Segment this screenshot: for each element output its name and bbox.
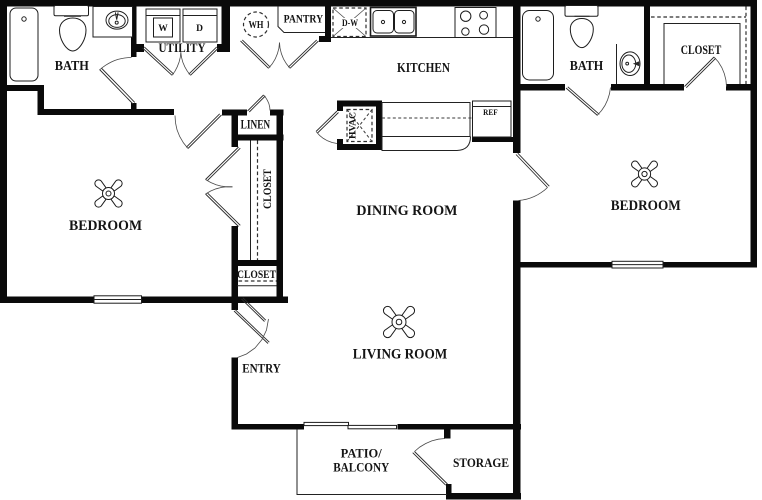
- svg-text:BEDROOM: BEDROOM: [611, 198, 681, 214]
- svg-text:D: D: [196, 24, 203, 34]
- svg-text:LIVING ROOM: LIVING ROOM: [353, 346, 448, 362]
- svg-text:STORAGE: STORAGE: [453, 456, 509, 470]
- svg-text:PANTRY: PANTRY: [284, 14, 324, 26]
- svg-text:W: W: [158, 24, 168, 34]
- svg-text:DINING ROOM: DINING ROOM: [356, 203, 457, 219]
- svg-text:CLOSET: CLOSET: [237, 268, 276, 281]
- svg-text:WH: WH: [249, 20, 264, 31]
- svg-text:D-W: D-W: [342, 19, 359, 29]
- svg-text:CLOSET: CLOSET: [681, 43, 722, 57]
- svg-text:PATIO/: PATIO/: [341, 447, 383, 461]
- svg-text:KITCHEN: KITCHEN: [397, 60, 450, 75]
- svg-text:BATH: BATH: [55, 58, 90, 73]
- svg-text:UTILITY: UTILITY: [159, 40, 207, 55]
- svg-text:BATH: BATH: [570, 58, 604, 73]
- svg-text:ENTRY: ENTRY: [242, 361, 281, 375]
- svg-text:REF: REF: [483, 107, 498, 117]
- svg-text:BALCONY: BALCONY: [333, 461, 389, 475]
- svg-text:HVAC: HVAC: [348, 112, 358, 139]
- svg-text:LINEN: LINEN: [241, 118, 271, 132]
- svg-text:CLOSET: CLOSET: [260, 169, 274, 209]
- svg-text:BEDROOM: BEDROOM: [69, 218, 142, 234]
